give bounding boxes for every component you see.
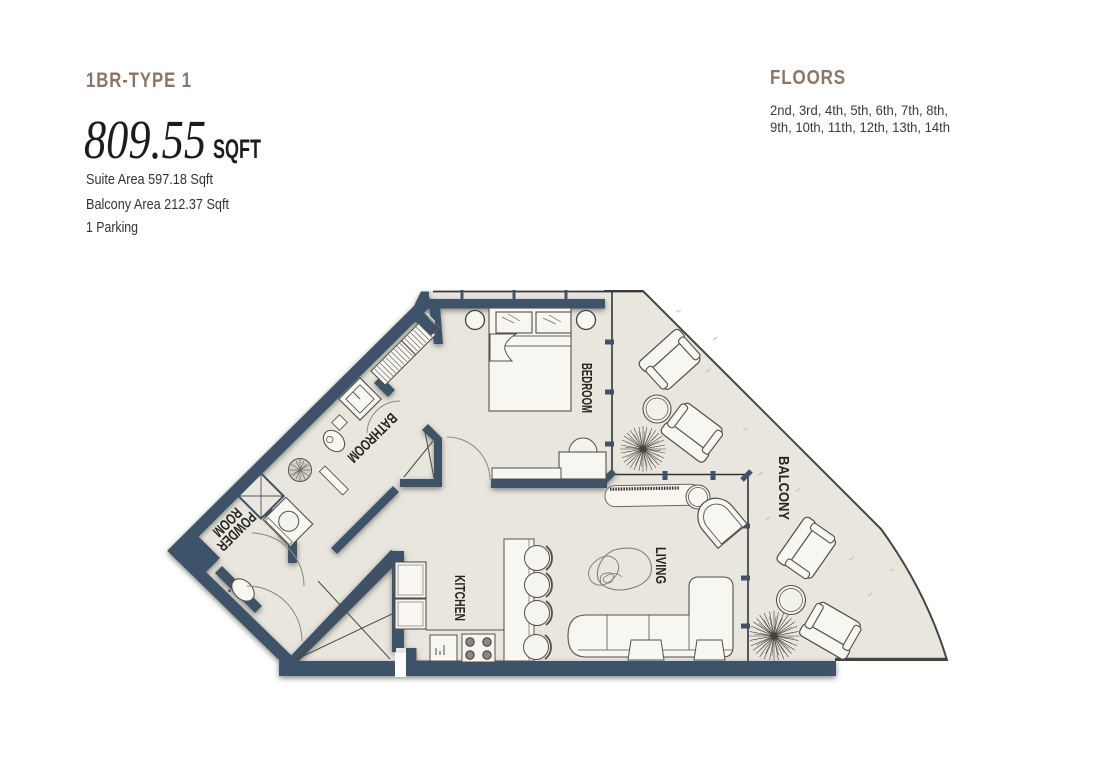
svg-text:FLOORS: FLOORS: [770, 67, 846, 89]
svg-text:1 Parking: 1 Parking: [86, 219, 138, 236]
svg-text:LIVING: LIVING: [652, 547, 669, 584]
svg-text:BEDROOM: BEDROOM: [578, 363, 595, 413]
svg-text:SQFT: SQFT: [213, 134, 261, 164]
svg-text:809.55: 809.55: [84, 109, 206, 170]
svg-text:BALCONY: BALCONY: [775, 456, 792, 520]
svg-text:1BR-TYPE 1: 1BR-TYPE 1: [86, 69, 192, 92]
svg-text:9th, 10th, 11th, 12th, 13th, 1: 9th, 10th, 11th, 12th, 13th, 14th: [770, 119, 950, 135]
svg-text:2nd, 3rd, 4th, 5th, 6th, 7th,: 2nd, 3rd, 4th, 5th, 6th, 7th, 8th,: [770, 102, 948, 118]
svg-text:KITCHEN: KITCHEN: [451, 575, 468, 621]
svg-text:Balcony Area 212.37 Sqft: Balcony Area 212.37 Sqft: [86, 196, 230, 213]
svg-text:Suite Area 597.18 Sqft: Suite Area 597.18 Sqft: [86, 171, 214, 188]
